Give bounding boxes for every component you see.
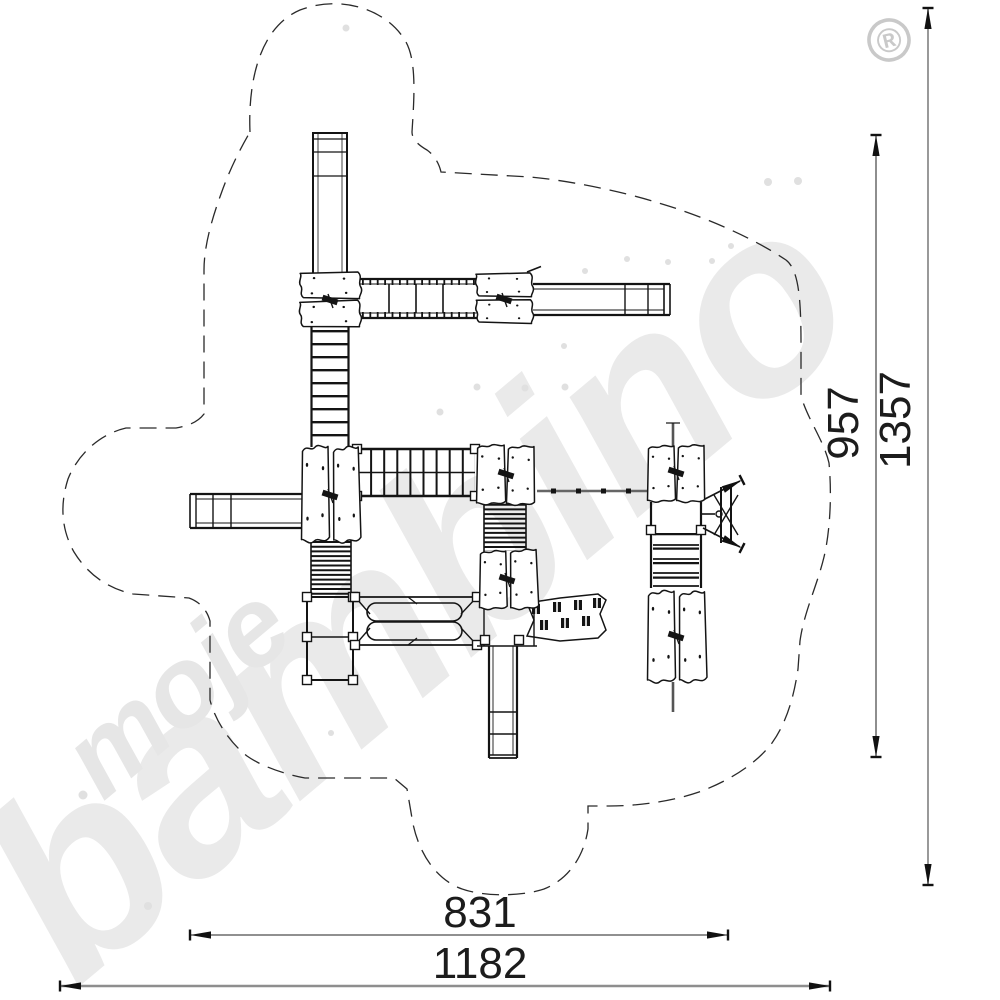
dim-label-1357: 1357 — [871, 371, 920, 469]
climbing-ladder — [312, 326, 349, 447]
rope-bridge — [360, 279, 477, 318]
dim-label-957: 957 — [819, 386, 868, 459]
tower-slide — [313, 133, 347, 278]
dim-label-1182: 1182 — [433, 939, 528, 988]
dimension-outer-height: 1357 — [871, 7, 934, 886]
watermark-bambino: bambino — [0, 146, 903, 1000]
watermark-layer: bambino moje ® — [0, 16, 913, 1000]
playground-plan-drawing: bambino moje ® — [0, 0, 1000, 1000]
registered-trademark-icon: ® — [865, 16, 913, 64]
dim-label-831: 831 — [443, 888, 516, 937]
